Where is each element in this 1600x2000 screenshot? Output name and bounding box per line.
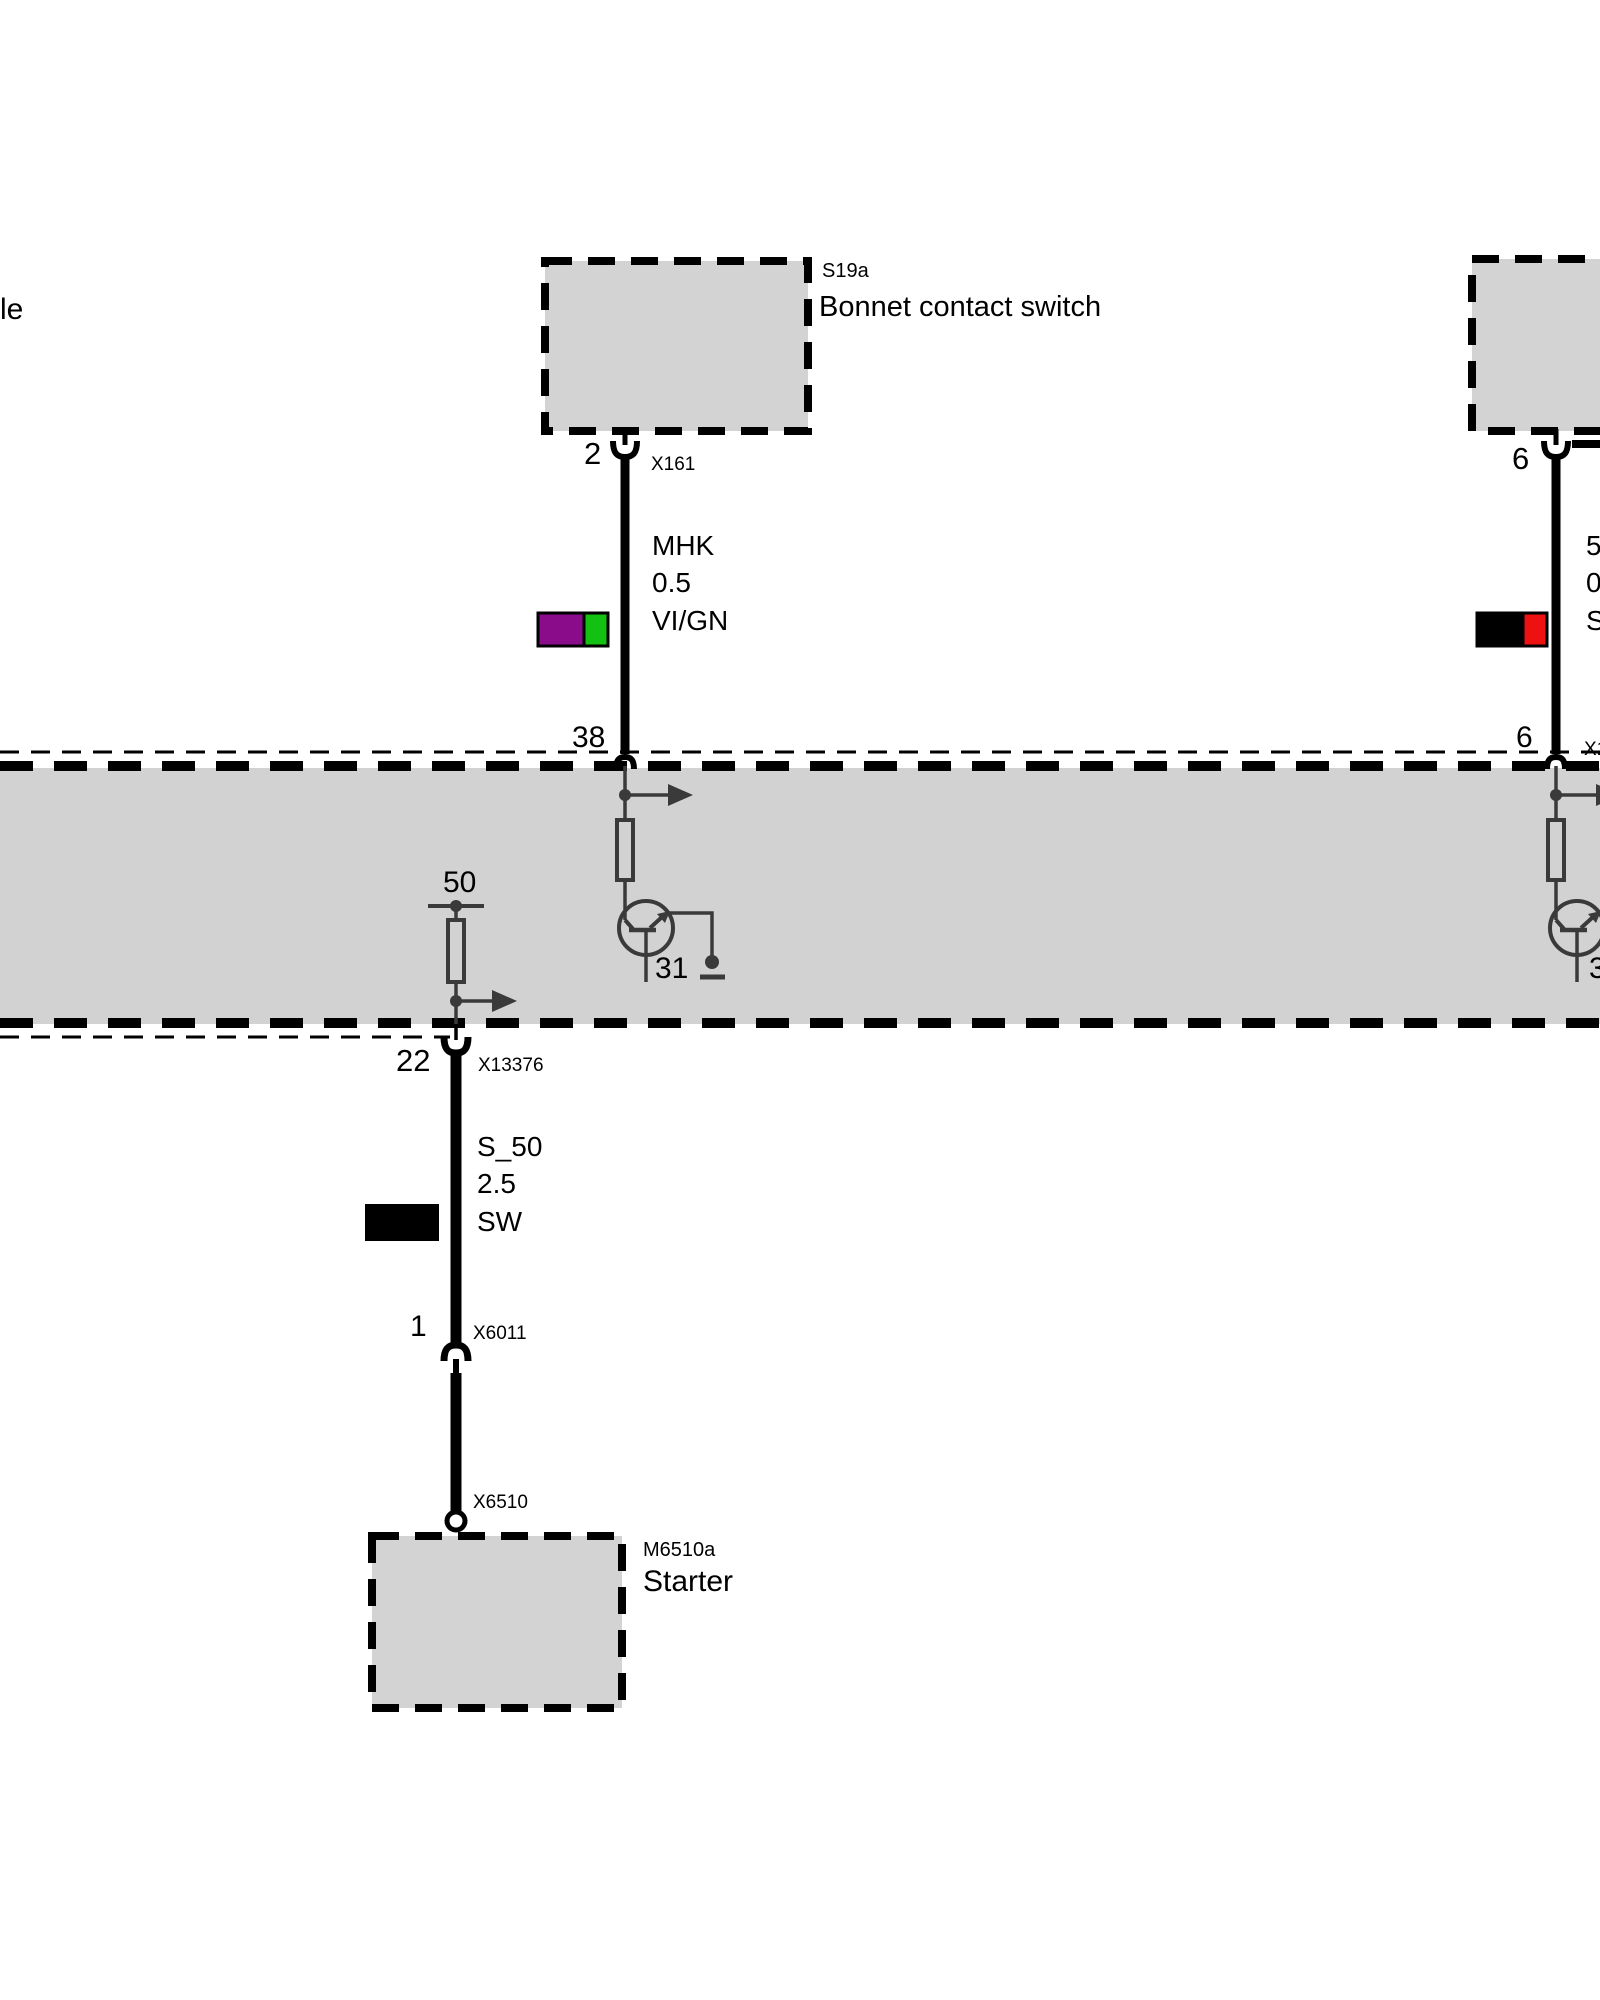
color-swatch-sw-rt [1477,613,1547,646]
terminal-31-label: 31 [655,953,688,985]
starter-name: Starter [643,1566,733,1598]
pin2-label: 2 [584,438,601,471]
pin6-top-label: 6 [1512,443,1529,476]
connector-pin6-label-fragment: X1 [1584,740,1600,760]
pin38-label: 38 [572,722,605,754]
left-clipped-text: le [0,294,23,326]
wire-s50-color-code: SW [477,1207,522,1236]
wire-mhk-color-code: VI/GN [652,606,728,635]
color-swatch-vi-gn [538,613,608,646]
bonnet-contact-switch-box [545,261,808,431]
swatch-black [1477,613,1523,646]
bonnet-switch-id: S19a [822,261,869,282]
wiring-diagram: le S19a Bonnet contact switch 2 X161 MHK… [0,0,1600,2000]
connector-x6011-socket-icon [444,1345,468,1361]
clipped-border-dash [1572,440,1600,448]
connector-x6011-label: X6011 [473,1324,527,1344]
wire-right-line1: 50 [1586,531,1600,560]
signal-arrow-icon [1596,784,1600,806]
color-swatch-sw [365,1204,439,1241]
starter-box [372,1536,622,1708]
wire-s50-name: S_50 [477,1132,542,1161]
pin1-label: 1 [410,1311,427,1343]
control-module-fill [0,768,1600,1024]
connector-x6510-label: X6510 [473,1493,528,1513]
pin6-bottom-label: 6 [1516,722,1533,754]
wire-right-line2: 0. [1586,568,1600,597]
wiring-diagram-graphics [0,0,1600,2000]
wire-mhk-name: MHK [652,531,714,560]
swatch-red [1523,613,1547,646]
wire-mhk-gauge: 0.5 [652,568,691,597]
terminal-50-label: 50 [443,867,476,899]
wire-s50-gauge: 2.5 [477,1169,516,1198]
wire-s50-branch [444,1037,468,1530]
wire-right-line3: S [1586,606,1600,635]
starter-id: M6510a [643,1540,715,1561]
swatch-violet [538,613,584,646]
pin22-label: 22 [396,1045,430,1078]
bonnet-switch-name: Bonnet contact switch [819,292,1101,322]
connector-x161-label: X161 [651,455,695,475]
right-wire-branch [1544,429,1600,769]
terminal-31-right-fragment: 3 [1589,953,1600,985]
connector-x13376-label: X13376 [478,1056,544,1076]
control-module-band [0,752,1600,1037]
swatch-green [584,613,608,646]
connector-x6510-ring-icon [447,1512,465,1530]
ground-dot [705,955,719,969]
wire-mhk-branch [613,429,637,769]
right-component-box [1472,259,1600,431]
